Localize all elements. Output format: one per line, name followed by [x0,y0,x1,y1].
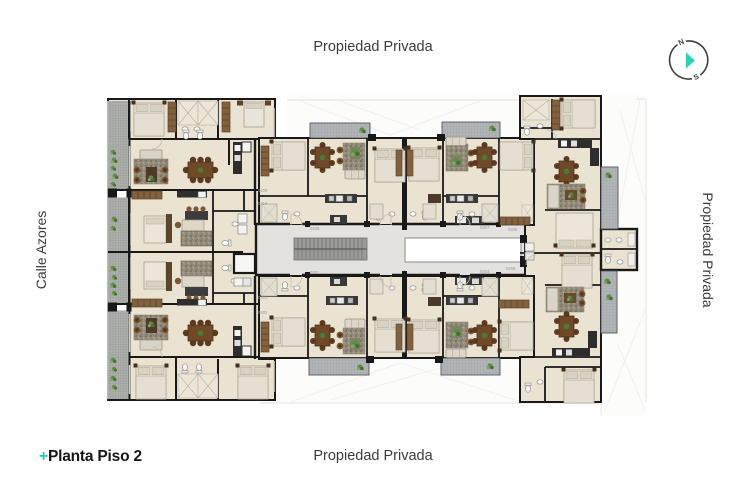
svg-text:0202: 0202 [258,310,268,315]
svg-text:N: N [677,37,686,47]
svg-text:0204: 0204 [480,269,490,274]
svg-text:0210: 0210 [258,201,268,206]
svg-text:0205: 0205 [506,266,516,271]
svg-text:Propiedad Privada: Propiedad Privada [313,39,433,55]
svg-text:0208: 0208 [310,226,320,231]
svg-text:0207: 0207 [480,225,490,230]
svg-text:Propiedad Privada: Propiedad Privada [313,448,433,464]
svg-text:0206: 0206 [508,227,518,232]
svg-text:Planta Piso 2: Planta Piso 2 [48,448,142,465]
svg-text:Calle Azores: Calle Azores [33,211,49,290]
svg-text:Propiedad Privada: Propiedad Privada [700,192,716,307]
svg-text:0201: 0201 [310,270,320,275]
svg-text:+: + [39,448,48,465]
svg-text:0201: 0201 [258,295,268,300]
svg-text:0209: 0209 [258,188,268,193]
svg-text:S: S [692,72,700,82]
